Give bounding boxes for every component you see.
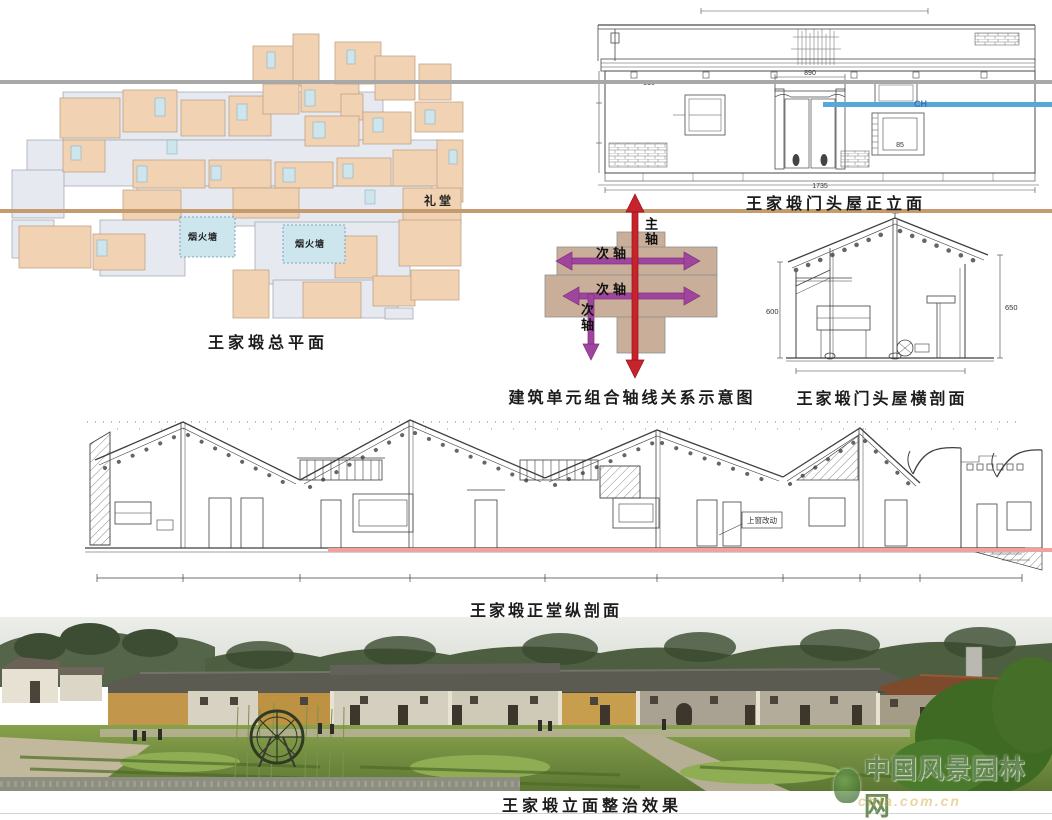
blue-guide-line bbox=[823, 102, 1052, 107]
cross-section-drawing: 600 650 bbox=[752, 208, 1052, 383]
watermark: 中国风景园林网 bbox=[834, 749, 1052, 820]
svg-text:85: 85 bbox=[896, 142, 904, 149]
gray-guide-line bbox=[0, 80, 1052, 84]
long-section-structure bbox=[85, 420, 1042, 582]
watermark-title: 中国风景园林网 bbox=[864, 749, 1052, 820]
secondary-axis-label-1: 次轴 bbox=[596, 243, 630, 262]
elevation-level-mark: CH bbox=[914, 99, 927, 109]
distant-building bbox=[966, 647, 982, 677]
svg-text:890: 890 bbox=[804, 70, 816, 77]
long-section-caption: 王家塅正堂纵剖面 bbox=[470, 597, 622, 621]
site-plan-pond1-label: 烟火塘 bbox=[188, 230, 218, 243]
cross-section-structure bbox=[777, 209, 1003, 374]
secondary-axis-label-2: 次轴 bbox=[596, 279, 630, 298]
front-elevation-drawing: 890 510 85 1735 bbox=[583, 3, 1052, 195]
front-elevation-caption: 王家塅门头屋正立面 bbox=[746, 190, 926, 214]
watermark-url: chla.com.cn bbox=[858, 793, 961, 809]
main-axis-label: 主轴 bbox=[641, 217, 660, 247]
longitudinal-section-drawing: 上窗改动 bbox=[57, 402, 1052, 598]
site-plan-pond2-label: 烟火塘 bbox=[295, 237, 325, 250]
cross-section-caption: 王家塅门头屋横剖面 bbox=[796, 385, 967, 409]
site-plan-drawing bbox=[5, 22, 465, 347]
secondary-axis-label-3: 次轴 bbox=[577, 303, 596, 333]
red-guide-line bbox=[328, 548, 1052, 552]
drawing-sheet: 礼堂 烟火塘 烟火塘 王家塅总平面 bbox=[0, 0, 1052, 820]
site-plan-caption: 王家塅总平面 bbox=[208, 329, 328, 353]
cross-section-dimension-text: 600 650 bbox=[766, 303, 1018, 316]
photo-caption: 王家塅立面整治效果 bbox=[502, 792, 682, 816]
elevation-structure bbox=[596, 8, 1039, 193]
svg-text:600: 600 bbox=[766, 307, 779, 316]
svg-text:650: 650 bbox=[1005, 303, 1018, 312]
watermark-logo-icon bbox=[834, 769, 860, 803]
axis-diagram bbox=[538, 188, 723, 386]
site-plan-hall-label: 礼堂 bbox=[424, 192, 454, 209]
elevation-dimension-text: 890 510 85 1735 bbox=[643, 70, 904, 190]
site-plan-small-annex bbox=[385, 308, 413, 319]
svg-text:1735: 1735 bbox=[812, 183, 828, 190]
long-section-note: 上窗改动 bbox=[747, 515, 777, 525]
axis-diagram-caption: 建筑单元组合轴线关系示意图 bbox=[508, 384, 755, 408]
